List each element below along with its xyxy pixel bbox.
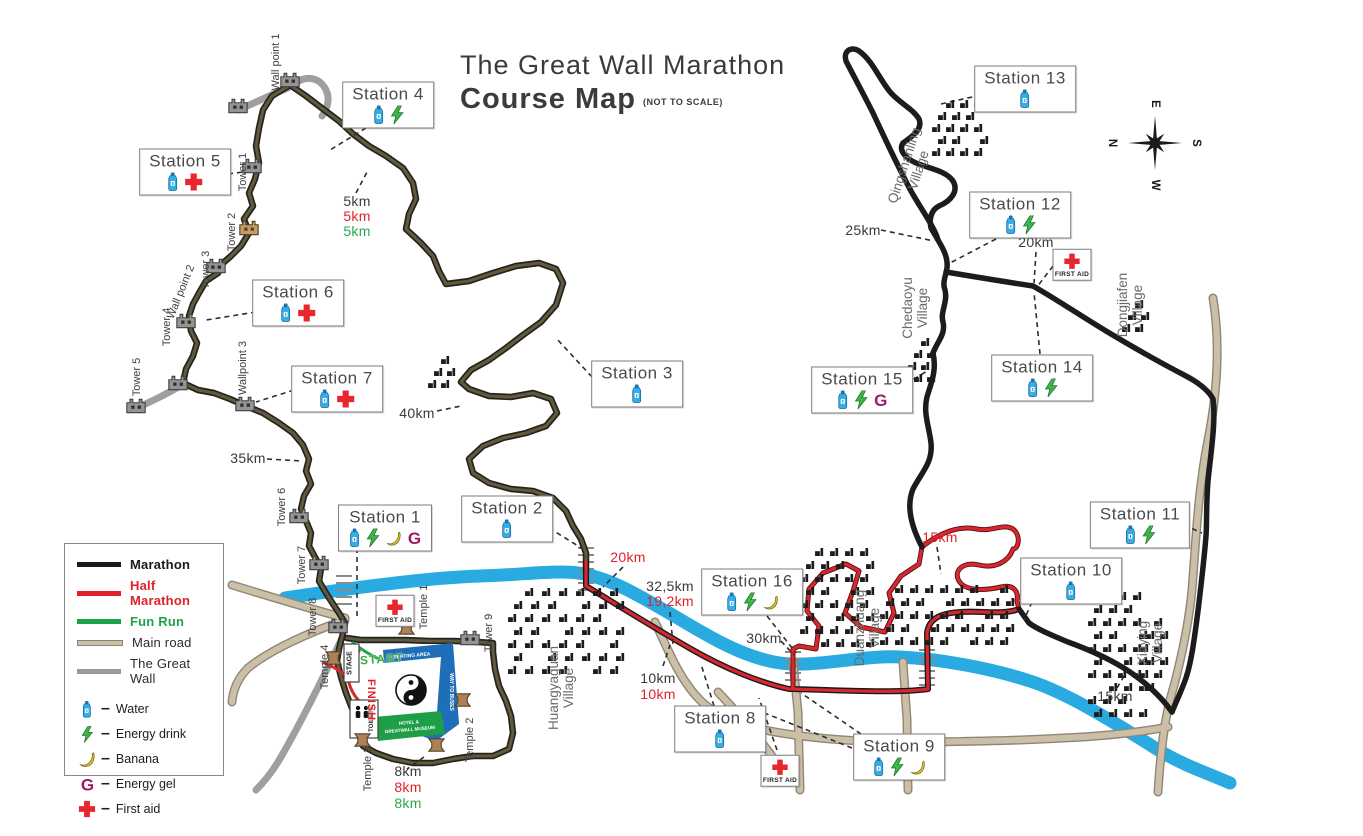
bolt-icon bbox=[743, 593, 757, 612]
house-icon bbox=[593, 666, 601, 674]
house-icon bbox=[914, 350, 922, 358]
first-aid-post-1: FIRST AID bbox=[1053, 249, 1092, 281]
village-label-duanzhuang: DuanzhuangVillage bbox=[853, 590, 883, 667]
station-services bbox=[471, 520, 543, 539]
village-label-huangyaguan: HuangyaguanVillage bbox=[547, 646, 577, 730]
house-icon bbox=[955, 585, 963, 593]
house-icon bbox=[1118, 670, 1126, 678]
house-icon bbox=[895, 637, 903, 645]
legend-service-label: Banana bbox=[116, 752, 159, 766]
house-icon bbox=[866, 561, 874, 569]
house-icon bbox=[910, 637, 918, 645]
station-services bbox=[979, 216, 1061, 235]
tan-tower-icon bbox=[240, 221, 258, 234]
distance-marker-30km-black: 30km bbox=[746, 630, 781, 646]
temple-icon bbox=[429, 739, 444, 751]
legend-dash: – bbox=[101, 750, 110, 768]
house-icon bbox=[946, 124, 954, 132]
station-box-7: Station 7 bbox=[291, 366, 383, 413]
distance-marker-5km-green: 5km bbox=[343, 223, 370, 239]
house-icon bbox=[830, 600, 838, 608]
village-label-chedaoyu: ChedaoyuVillage bbox=[901, 277, 931, 339]
legend-route-swatch bbox=[77, 640, 123, 646]
legend-service-list: –Water–Energy drink–Banana–Energy gel–Fi… bbox=[77, 700, 213, 818]
station-services bbox=[348, 529, 422, 548]
water-icon bbox=[279, 304, 292, 323]
wall-tower-icon bbox=[127, 399, 145, 412]
station-services bbox=[301, 390, 373, 409]
house-icon bbox=[961, 624, 969, 632]
house-icon bbox=[910, 611, 918, 619]
station-box-6: Station 6 bbox=[252, 280, 344, 327]
banana-icon bbox=[385, 530, 402, 546]
legend-service-3: –Energy gel bbox=[77, 775, 213, 793]
title-course-map: Course Map bbox=[460, 83, 636, 115]
compass-star bbox=[1128, 116, 1182, 170]
village-name: Dongjiafen bbox=[1116, 273, 1131, 338]
water-icon bbox=[166, 173, 179, 192]
house-icon bbox=[806, 561, 814, 569]
bolt-icon bbox=[81, 726, 94, 743]
station-label: Station 14 bbox=[1001, 358, 1083, 378]
legend-route-label: Fun Run bbox=[130, 614, 184, 629]
house-icon bbox=[980, 136, 988, 144]
house-icon bbox=[514, 653, 522, 661]
house-icon bbox=[1094, 657, 1102, 665]
house-icon bbox=[815, 600, 823, 608]
house-icon bbox=[991, 598, 999, 606]
legend-dash: – bbox=[101, 725, 110, 743]
house-icon bbox=[610, 640, 618, 648]
energy-drink-icon bbox=[77, 726, 97, 743]
landmark-label-temple-2: Temple 2 bbox=[464, 718, 476, 763]
legend-service-0: –Water bbox=[77, 700, 213, 718]
village-name: Huangyaguan bbox=[547, 646, 562, 730]
water-icon bbox=[713, 730, 726, 749]
bolt-icon bbox=[366, 529, 380, 548]
compass-right-label: S bbox=[1190, 139, 1202, 147]
bolt-icon bbox=[390, 106, 404, 125]
station-box-16: Station 16 bbox=[701, 569, 803, 616]
house-icon bbox=[1088, 670, 1096, 678]
landmark-label-tower-9: Tower 9 bbox=[483, 614, 495, 653]
house-icon bbox=[960, 124, 968, 132]
station-services bbox=[1100, 526, 1180, 545]
house-icon bbox=[830, 626, 838, 634]
legend-route-label: Half Marathon bbox=[130, 578, 213, 608]
legend-dash: – bbox=[101, 800, 110, 818]
landmark-label-tower-2: Tower 2 bbox=[226, 213, 238, 252]
house-icon bbox=[610, 666, 618, 674]
house-icon bbox=[961, 598, 969, 606]
house-icon bbox=[1094, 631, 1102, 639]
distance-marker-5km-black: 5km bbox=[343, 193, 370, 209]
house-icon bbox=[1133, 592, 1141, 600]
station-box-11: Station 11 bbox=[1090, 502, 1190, 549]
house-icon bbox=[1118, 644, 1126, 652]
legend-route-label: Main road bbox=[132, 635, 192, 650]
first-aid-post-label: FIRST AID bbox=[1054, 271, 1091, 278]
water-icon bbox=[725, 593, 738, 612]
house-icon bbox=[1088, 618, 1096, 626]
legend-route-swatch bbox=[77, 562, 121, 567]
house-icon bbox=[576, 640, 584, 648]
house-icon bbox=[845, 548, 853, 556]
banana-icon bbox=[762, 594, 779, 610]
bolt-icon bbox=[854, 391, 868, 410]
station-label: Station 15 bbox=[821, 370, 903, 390]
house-icon bbox=[921, 362, 929, 370]
village-name: Chedaoyu bbox=[901, 277, 916, 339]
legend-route-4: The Great Wall bbox=[77, 656, 213, 686]
house-icon bbox=[514, 627, 522, 635]
station-label: Station 16 bbox=[711, 572, 793, 592]
house-icon bbox=[599, 627, 607, 635]
compass-rose: E S W N bbox=[1106, 100, 1202, 190]
station-box-15: Station 15 bbox=[811, 367, 913, 414]
distance-marker-20km-red: 20km bbox=[610, 549, 645, 565]
house-icon bbox=[582, 601, 590, 609]
station-box-3: Station 3 bbox=[591, 361, 683, 408]
station-services bbox=[262, 304, 334, 323]
wall-tower-icon bbox=[229, 99, 247, 112]
distance-marker-40km-black: 40km bbox=[399, 405, 434, 421]
house-icon bbox=[1006, 598, 1014, 606]
legend-service-label: Energy drink bbox=[116, 727, 186, 741]
banana-icon bbox=[78, 751, 96, 768]
landmark-label-temple-3: Temple 3 bbox=[362, 747, 374, 792]
house-icon bbox=[952, 136, 960, 144]
house-icon bbox=[1109, 631, 1117, 639]
village-name: Xiaying bbox=[1136, 621, 1151, 665]
house-icon bbox=[576, 614, 584, 622]
station-box-9: Station 9 bbox=[853, 734, 945, 781]
station-box-5: Station 5 bbox=[139, 149, 231, 196]
village-name: Duanzhuang bbox=[853, 590, 868, 667]
title-scale-note: (NOT TO SCALE) bbox=[643, 97, 723, 107]
house-icon bbox=[925, 585, 933, 593]
station-label: Station 4 bbox=[352, 85, 424, 105]
legend: MarathonHalf MarathonFun RunMain roadThe… bbox=[64, 543, 224, 776]
bolt-icon bbox=[1142, 526, 1156, 545]
house-icon bbox=[1118, 618, 1126, 626]
house-icon bbox=[1124, 709, 1132, 717]
station-label: Station 7 bbox=[301, 369, 373, 389]
landmark-label-tower-6: Tower 6 bbox=[276, 488, 288, 527]
distance-marker-15km-black: 15km bbox=[1097, 688, 1132, 704]
legend-route-swatch bbox=[77, 669, 121, 674]
legend-route-swatch bbox=[77, 591, 121, 596]
finish-label: FINISH bbox=[365, 679, 377, 721]
water-icon bbox=[348, 529, 361, 548]
cross-icon bbox=[297, 304, 316, 323]
station-label: Station 10 bbox=[1030, 561, 1112, 581]
house-icon bbox=[932, 124, 940, 132]
first-aid-post-2: FIRST AID bbox=[376, 595, 415, 627]
house-icon bbox=[925, 611, 933, 619]
legend-service-label: Water bbox=[116, 702, 149, 716]
landmark-label-wall-point-1: Wall point 1 bbox=[270, 33, 282, 90]
title-line1: The Great Wall Marathon bbox=[460, 50, 785, 81]
house-icon bbox=[599, 653, 607, 661]
station-box-12: Station 12 bbox=[969, 192, 1071, 239]
distance-marker-25km-black: 25km bbox=[845, 222, 880, 238]
cross-icon bbox=[184, 173, 203, 192]
water-icon bbox=[836, 391, 849, 410]
water-icon bbox=[1019, 90, 1032, 109]
house-icon bbox=[582, 627, 590, 635]
distance-marker-19_2km-red: 19,2km bbox=[646, 593, 694, 609]
legend-service-1: –Energy drink bbox=[77, 725, 213, 743]
station-box-2: Station 2 bbox=[461, 496, 553, 543]
house-icon bbox=[1109, 605, 1117, 613]
temple-icon bbox=[355, 734, 370, 746]
legend-route-label: The Great Wall bbox=[130, 656, 213, 686]
house-icon bbox=[542, 614, 550, 622]
legend-service-label: Energy gel bbox=[116, 777, 176, 791]
legend-service-label: First aid bbox=[116, 802, 160, 816]
house-icon bbox=[559, 614, 567, 622]
legend-service-4: –First aid bbox=[77, 800, 213, 818]
station-label: Station 6 bbox=[262, 283, 334, 303]
bolt-icon bbox=[1044, 379, 1058, 398]
house-icon bbox=[1154, 670, 1162, 678]
station-box-8: Station 8 bbox=[674, 706, 766, 753]
gel-icon bbox=[407, 530, 422, 547]
landmark-label-tower-5: Tower 5 bbox=[131, 358, 143, 397]
village-label-dongjiafen: DongjiafenVillage bbox=[1116, 273, 1146, 338]
house-icon bbox=[800, 626, 808, 634]
legend-route-list: MarathonHalf MarathonFun RunMain roadThe… bbox=[77, 557, 213, 686]
house-icon bbox=[525, 666, 533, 674]
village-suffix: Village bbox=[916, 277, 931, 339]
distance-marker-32_5km-black: 32,5km bbox=[646, 578, 694, 594]
house-icon bbox=[860, 548, 868, 556]
house-icon bbox=[508, 640, 516, 648]
house-icon bbox=[985, 637, 993, 645]
compass-left-label: N bbox=[1106, 139, 1118, 147]
distance-marker-35km-black: 35km bbox=[230, 450, 265, 466]
bolt-icon bbox=[1022, 216, 1036, 235]
station-services bbox=[863, 758, 935, 777]
house-icon bbox=[974, 124, 982, 132]
village-suffix: Village bbox=[868, 590, 883, 667]
house-icon bbox=[940, 585, 948, 593]
house-icon bbox=[1094, 605, 1102, 613]
station-services bbox=[684, 730, 756, 749]
station-label: Station 13 bbox=[984, 69, 1066, 89]
house-icon bbox=[542, 588, 550, 596]
station-label: Station 2 bbox=[471, 499, 543, 519]
great-wall-marathon-course-map: G bbox=[0, 0, 1363, 836]
house-icon bbox=[910, 585, 918, 593]
compass-bottom-label: W bbox=[1149, 180, 1161, 191]
landmark-label-tower-8: Tower 8 bbox=[307, 598, 319, 637]
house-icon bbox=[593, 614, 601, 622]
legend-route-3: Main road bbox=[77, 635, 213, 650]
house-icon bbox=[1140, 670, 1148, 678]
cross-icon bbox=[78, 800, 96, 818]
house-icon bbox=[531, 627, 539, 635]
house-icon bbox=[441, 356, 449, 364]
house-icon bbox=[1103, 618, 1111, 626]
water-icon bbox=[1065, 582, 1078, 601]
stage-label: STAGE bbox=[347, 651, 354, 675]
house-icon bbox=[976, 624, 984, 632]
house-icon bbox=[960, 100, 968, 108]
village-suffix: Village bbox=[1151, 621, 1166, 665]
station-label: Station 1 bbox=[348, 508, 422, 528]
house-icon bbox=[434, 368, 442, 376]
house-icon bbox=[940, 637, 948, 645]
landmark-label-tower-4: Tower 4 bbox=[161, 308, 173, 347]
water-icon bbox=[1004, 216, 1017, 235]
house-icon bbox=[938, 112, 946, 120]
house-icon bbox=[1124, 605, 1132, 613]
house-icon bbox=[991, 624, 999, 632]
house-icon bbox=[974, 148, 982, 156]
first-aid-post-label: FIRST AID bbox=[377, 617, 414, 624]
bolt-icon bbox=[890, 758, 904, 777]
water-icon bbox=[630, 385, 643, 404]
landmark-label-wallpoint-3: Wallpoint 3 bbox=[237, 341, 249, 395]
way-out-label: WAY TO BUSES bbox=[448, 673, 454, 711]
water-icon bbox=[81, 701, 93, 718]
wall-tower-icon bbox=[236, 397, 254, 410]
village-suffix: Village bbox=[1131, 273, 1146, 338]
legend-route-label: Marathon bbox=[130, 557, 190, 572]
house-icon bbox=[441, 380, 449, 388]
distance-marker-8km-black: 8km bbox=[394, 763, 421, 779]
house-icon bbox=[966, 112, 974, 120]
legend-dash: – bbox=[101, 775, 110, 793]
station-label: Station 3 bbox=[601, 364, 673, 384]
house-icon bbox=[514, 601, 522, 609]
village-label-xiaying: XiayingVillage bbox=[1136, 621, 1166, 665]
distance-marker-8km-green: 8km bbox=[394, 795, 421, 811]
station-services bbox=[821, 391, 903, 410]
station-label: Station 9 bbox=[863, 737, 935, 757]
first-aid-post-3: FIRST AID bbox=[761, 755, 800, 787]
house-icon bbox=[525, 614, 533, 622]
compass-top-label: E bbox=[1149, 100, 1161, 108]
house-icon bbox=[447, 368, 455, 376]
distance-marker-10km-red: 10km bbox=[640, 686, 675, 702]
house-icon bbox=[914, 374, 922, 382]
house-icon bbox=[599, 601, 607, 609]
wall-tower-icon bbox=[169, 376, 187, 389]
station-services bbox=[711, 593, 793, 612]
house-icon bbox=[582, 653, 590, 661]
legend-route-0: Marathon bbox=[77, 557, 213, 572]
house-icon bbox=[531, 601, 539, 609]
station-box-4: Station 4 bbox=[342, 82, 434, 129]
house-icon bbox=[952, 112, 960, 120]
house-icon bbox=[938, 136, 946, 144]
house-icon bbox=[821, 561, 829, 569]
first-aid-post-label: FIRST AID bbox=[762, 777, 799, 784]
house-icon bbox=[548, 601, 556, 609]
house-icon bbox=[616, 653, 624, 661]
legend-service-2: –Banana bbox=[77, 750, 213, 768]
station-label: Station 11 bbox=[1100, 505, 1180, 525]
village-suffix: Village bbox=[562, 646, 577, 730]
station-label: Station 8 bbox=[684, 709, 756, 729]
house-icon bbox=[565, 627, 573, 635]
gel-icon bbox=[80, 776, 95, 793]
banana-icon bbox=[909, 759, 926, 775]
wall-tower-icon bbox=[281, 73, 299, 86]
station-services bbox=[352, 106, 424, 125]
map-title: The Great Wall Marathon Course Map(NOT T… bbox=[460, 50, 785, 116]
house-icon bbox=[1133, 670, 1141, 678]
landmark-label-tower-3: Tower 3 bbox=[200, 251, 212, 290]
legend-route-swatch bbox=[77, 619, 121, 624]
house-icon bbox=[830, 548, 838, 556]
landmark-label-temple-1: Temple 1 bbox=[418, 585, 430, 630]
house-icon bbox=[559, 588, 567, 596]
station-box-10: Station 10 bbox=[1020, 558, 1122, 605]
station-services bbox=[1001, 379, 1083, 398]
house-icon bbox=[836, 613, 844, 621]
station-label: Station 12 bbox=[979, 195, 1061, 215]
house-icon bbox=[1103, 644, 1111, 652]
station-box-1: Station 1 bbox=[338, 505, 432, 552]
water-icon bbox=[1026, 379, 1039, 398]
yin-yang-symbol bbox=[396, 675, 426, 705]
station-services bbox=[1030, 582, 1112, 601]
house-icon bbox=[946, 598, 954, 606]
gel-icon bbox=[873, 392, 888, 409]
station-services bbox=[149, 173, 221, 192]
house-icon bbox=[976, 598, 984, 606]
landmark-label-tower-1: Tower 1 bbox=[237, 153, 249, 192]
house-icon bbox=[1109, 709, 1117, 717]
station-label: Station 5 bbox=[149, 152, 221, 172]
house-icon bbox=[960, 148, 968, 156]
house-icon bbox=[1000, 637, 1008, 645]
landmark-label-temple-4: Temple 4 bbox=[319, 645, 331, 690]
house-icon bbox=[525, 640, 533, 648]
stage-box: STAGE bbox=[344, 644, 359, 682]
wall-tower-icon bbox=[461, 631, 479, 644]
distance-marker-5km-red: 5km bbox=[343, 208, 370, 224]
house-icon bbox=[1088, 696, 1096, 704]
water-icon bbox=[318, 390, 331, 409]
house-icon bbox=[1103, 670, 1111, 678]
water-icon bbox=[500, 520, 513, 539]
house-icon bbox=[901, 624, 909, 632]
house-icon bbox=[815, 548, 823, 556]
cross-icon bbox=[1064, 253, 1081, 270]
house-icon bbox=[946, 148, 954, 156]
cross-icon bbox=[772, 759, 789, 776]
house-icon bbox=[508, 614, 516, 622]
house-icon bbox=[921, 338, 929, 346]
water-icon bbox=[872, 758, 885, 777]
water-bottle-icon bbox=[77, 701, 97, 718]
cross-icon bbox=[387, 599, 404, 616]
energy-gel-icon bbox=[77, 776, 97, 793]
house-icon bbox=[860, 574, 868, 582]
distance-marker-10km-black: 10km bbox=[640, 670, 675, 686]
house-icon bbox=[616, 627, 624, 635]
house-icon bbox=[1139, 709, 1147, 717]
house-icon bbox=[836, 639, 844, 647]
station-box-14: Station 14 bbox=[991, 355, 1093, 402]
cross-icon bbox=[336, 390, 355, 409]
house-icon bbox=[1088, 644, 1096, 652]
